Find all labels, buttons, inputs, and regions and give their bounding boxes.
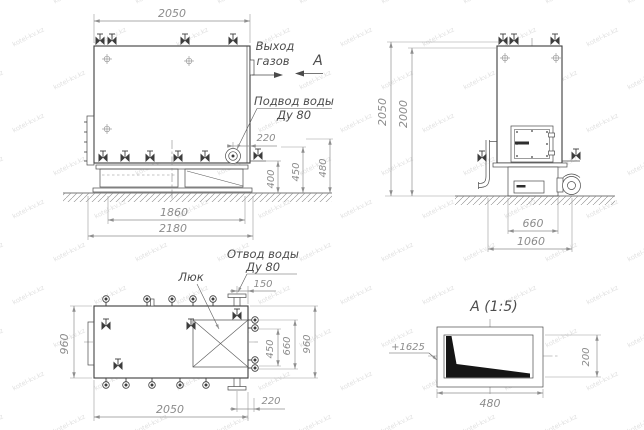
dim-top-pitch-660: 660 [282, 336, 293, 355]
label-water-inlet-2: Ду 80 [276, 108, 311, 122]
left-flange-strip-top [88, 322, 94, 365]
front-view: 2050 [63, 7, 334, 240]
valve-icon [181, 34, 190, 45]
valve-icon [190, 296, 197, 306]
dim-side-base-width: 660 [523, 217, 544, 230]
valve-icon [103, 378, 110, 388]
valve-icon [248, 365, 258, 372]
ground-hatch [455, 196, 615, 205]
label-hatch: Люк [177, 270, 203, 284]
dim-detail-width: 480 [480, 397, 501, 410]
valve-icon [572, 149, 581, 160]
dim-front-base-width: 1860 [160, 206, 188, 219]
pipe-stub [151, 299, 155, 306]
ash-door [514, 181, 544, 193]
top-view: 960 150 450 660 960 2050 [58, 247, 318, 421]
dim-front-h480: 480 [318, 158, 329, 177]
dim-detail-level: +1625 [391, 342, 425, 353]
dim-top-depth-right: 960 [302, 334, 313, 353]
valve-icon [203, 378, 210, 388]
detail-title: A (1:5) [469, 299, 517, 315]
dim-detail-height: 200 [581, 347, 592, 366]
dim-top-bottom-offset: 220 [261, 396, 280, 407]
label-water-outlet-2: Ду 80 [245, 260, 280, 274]
valve-icon [551, 34, 560, 45]
label-water-outlet-1: Отвод воды [227, 247, 299, 261]
label-gas-outlet-1: Выход [256, 39, 295, 53]
gas-flow-arrow-icon [252, 72, 283, 78]
dim-side-overall-depth: 1060 [517, 235, 545, 248]
blower-fan [557, 174, 581, 195]
label-gas-outlet-2: газов [256, 54, 289, 68]
valve-icon [229, 34, 238, 45]
valve-icon [123, 378, 130, 388]
dim-front-top-width: 2050 [158, 7, 186, 20]
dim-front-overall-width: 2180 [159, 222, 187, 235]
ground-hatch [63, 193, 332, 202]
valve-icon [108, 34, 117, 45]
valve-icon [210, 296, 217, 306]
valve-icon [149, 378, 156, 388]
base-frame [93, 165, 252, 192]
dim-top-pitch-450: 450 [265, 339, 276, 358]
valve-icon [96, 34, 105, 45]
dim-front-h400: 400 [266, 169, 277, 188]
valve-icon [510, 34, 519, 45]
bottom-pipe [228, 378, 246, 390]
label-view-letter: A [312, 53, 323, 69]
valve-icon [169, 296, 176, 306]
dim-top-length: 2050 [156, 403, 184, 416]
water-inlet-flange [226, 149, 241, 164]
dim-top-outlet-offset: 150 [253, 279, 272, 290]
valve-icon [248, 325, 258, 332]
dim-side-total-height: 2050 [376, 98, 389, 126]
valve-icon [177, 378, 184, 388]
bottom-flange-band [493, 163, 567, 167]
gas-outlet-stub [250, 60, 254, 75]
valve-icon [248, 357, 258, 364]
dim-top-depth-left: 960 [58, 334, 71, 355]
drawing-canvas: kotel-kv.kzkotel-kv.kzkotel-kv.kzkotel-k… [0, 0, 644, 430]
valve-icon [499, 34, 508, 45]
boiler-drawing: 2050 [0, 0, 644, 430]
dim-side-body-height: 2000 [397, 100, 410, 128]
view-direction-arrow-icon [295, 71, 323, 77]
left-flange-strip [87, 116, 94, 165]
valve-icon [103, 296, 110, 306]
side-view: 2050 2000 660 1060 [376, 34, 615, 252]
valve-icon [254, 149, 263, 160]
furnace-door [511, 126, 555, 162]
valve-icon [478, 151, 487, 162]
valve-icon [144, 296, 151, 306]
label-water-inlet-1: Подвод воды [254, 94, 334, 108]
detail-view: A (1:5) +1625 480 200 [389, 299, 601, 410]
dim-front-h450: 450 [291, 162, 302, 181]
valve-icon [248, 317, 258, 324]
water-outlet-pipe [228, 294, 246, 306]
dim-front-inlet-offset: 220 [256, 133, 275, 144]
